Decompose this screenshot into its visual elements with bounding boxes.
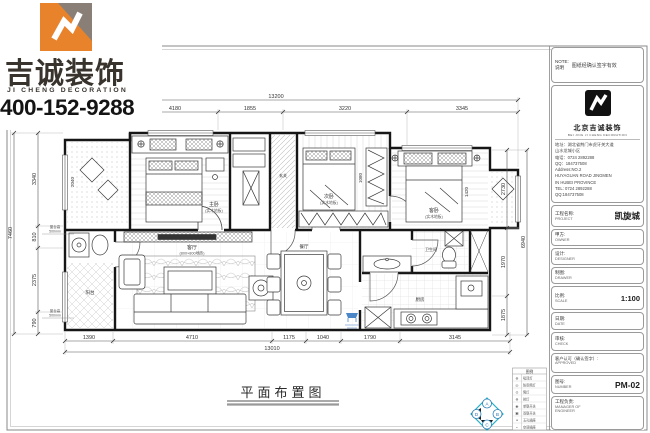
- label-living: 客厅: [187, 244, 197, 251]
- tv-cabinet: [124, 232, 252, 242]
- svg-text:窗台高: 窗台高: [50, 224, 61, 229]
- shower-drain: [445, 231, 463, 246]
- svg-text:A: A: [485, 401, 488, 406]
- drawing-number: PM-02: [615, 380, 640, 390]
- bed2-wardrobe-right: [366, 148, 387, 206]
- dim-left-3: 790: [32, 318, 38, 327]
- bed2-wardrobe-bottom: [299, 211, 388, 227]
- note-box: NOTE: 说明 图纸经确认签字有效: [551, 47, 644, 83]
- designer-box: 设计:DESIGNER: [551, 248, 644, 265]
- svg-text:射灯: 射灯: [523, 397, 530, 402]
- svg-text:⊗: ⊗: [515, 398, 518, 402]
- drawing-sheet: 13200 4180 1855 3220 3345 1390 4710 1175…: [0, 0, 650, 433]
- tb-company-cn: 北京吉诚装饰: [555, 123, 640, 133]
- dim-bottom-5: 3145: [449, 335, 461, 341]
- label-bed3-sub: (实木地板): [425, 214, 443, 219]
- approved-box: 客户认可（确认签字）: APPROVED: [551, 353, 644, 373]
- dim-inner-wardrobe: 1080: [358, 172, 363, 183]
- svg-text:吸顶灯: 吸顶灯: [523, 376, 533, 381]
- label-bed2-sub: (实木地板): [320, 200, 338, 205]
- label-master-sub: (实木地板): [205, 208, 223, 213]
- svg-text:500mm: 500mm: [49, 314, 61, 318]
- dim-top-0: 4180: [169, 106, 181, 112]
- scale-box: 比例:SCALE 1:100: [551, 286, 644, 310]
- dim-left-0: 3340: [32, 173, 38, 185]
- label-kitchen: 厨房: [416, 296, 425, 303]
- svg-text:500mm: 500mm: [49, 230, 61, 234]
- dim-bottom-3: 1040: [317, 335, 329, 341]
- scale-value: 1:100: [621, 294, 640, 303]
- dim-bottom-1: 4710: [186, 335, 198, 341]
- label-balcony: 阳台: [86, 289, 95, 296]
- project-box: 工程名称:PROJECT 凯旋城: [551, 205, 644, 227]
- dim-bottom-overall: 13010: [264, 346, 279, 352]
- dim-top-overall: 13200: [268, 94, 283, 100]
- svg-text:双联开关: 双联开关: [523, 411, 537, 416]
- hall-cabinets: [233, 138, 265, 205]
- plan-title: 平面布置图: [240, 385, 325, 400]
- manager-box: 工程负责: MANAGER OF ENGINEER: [551, 396, 644, 430]
- svg-text:五孔插座: 五孔插座: [523, 418, 537, 423]
- dim-bottom-0: 1390: [83, 335, 95, 341]
- label-bed2: 次卧: [324, 193, 334, 200]
- jicheng-diamond-logo: [40, 3, 92, 51]
- label-living-sub: (800×800地砖): [179, 251, 205, 256]
- dim-left-1: 810: [32, 232, 38, 241]
- svg-text:筒灯: 筒灯: [523, 390, 530, 395]
- elevation-compass-icon: A B C D: [471, 398, 503, 430]
- label-dining: 餐厅: [300, 243, 309, 250]
- owner-box: 甲方:OWNER: [551, 229, 644, 246]
- label-bath: 卫生间: [425, 246, 437, 252]
- vanity: [363, 256, 411, 272]
- svg-text:⊕: ⊕: [515, 377, 518, 381]
- dim-inner-bed: 1420: [464, 186, 469, 197]
- check-box: 审核:CHECK: [551, 332, 644, 351]
- dim-bottom-2: 1175: [283, 335, 295, 341]
- brand-block: 吉诚装饰 JI CHENG DECORATION 400-152-9288: [0, 0, 162, 130]
- label-entry: 玄关: [279, 172, 287, 178]
- phone-number: 400-152-9288: [0, 95, 134, 121]
- tb-qq-en: QQ:184737508: [555, 192, 640, 198]
- toilet: [442, 247, 456, 268]
- number-box: 图号:NUMBER PM-02: [551, 375, 644, 394]
- dim-right-1: 1970: [501, 256, 507, 268]
- svg-text:空调插座: 空调插座: [523, 425, 537, 430]
- company-name-en: JI CHENG DECORATION: [7, 87, 128, 94]
- master-wardrobe: [132, 136, 228, 153]
- plan-title-group: 平面布置图: [227, 385, 339, 405]
- svg-text:⊙: ⊙: [515, 391, 518, 395]
- fridge: [365, 307, 391, 328]
- svg-text:▣: ▣: [515, 412, 519, 416]
- shaft: [470, 230, 488, 272]
- svg-text:窗台高: 窗台高: [50, 308, 61, 313]
- company-name-cn: 吉诚装饰: [5, 50, 125, 92]
- svg-text:防雾筒灯: 防雾筒灯: [523, 383, 537, 388]
- coffee-table: [164, 267, 216, 294]
- dim-right-2: 1875: [501, 309, 507, 321]
- tb-company-en: BEI JING JI CHENG DECORATION: [555, 133, 640, 140]
- label-master: 主卧: [209, 201, 219, 208]
- dim-inner-bath: 2040: [70, 176, 75, 187]
- label-bed3: 客卧: [429, 207, 439, 214]
- note-label-cn: 说明: [555, 65, 569, 71]
- note-text: 图纸经确认签字有效: [572, 62, 617, 69]
- dim-right-0: 2730: [501, 183, 507, 195]
- svg-text:≡: ≡: [516, 419, 518, 423]
- project-name: 凯旋城: [614, 210, 640, 222]
- drawer-box: 制图:DRAWER: [551, 267, 644, 284]
- company-box: 北京吉诚装饰 BEI JING JI CHENG DECORATION 地址：湖…: [551, 85, 644, 203]
- dim-left-overall: 7460: [8, 227, 14, 239]
- master-bed: [146, 158, 202, 222]
- legend-table: 图例 ⊕◎ ⊙⊗ ◉▣ ≡⌁ 吸顶灯防雾筒灯 筒灯射灯 单联开关双联开关 五孔插…: [513, 368, 547, 430]
- dining-set: [267, 251, 341, 315]
- svg-text:B: B: [496, 412, 499, 417]
- laundry-fixtures: [69, 233, 108, 257]
- legend-title: 图例: [526, 369, 534, 374]
- dim-left-2: 2375: [32, 274, 38, 286]
- dim-right-overall: 6940: [521, 236, 527, 248]
- date-box: 日期:DATE: [551, 312, 644, 330]
- dim-top-3: 3345: [456, 106, 468, 112]
- dim-top-2: 3220: [339, 106, 351, 112]
- dim-top-1: 1855: [244, 106, 256, 112]
- bed3-headboard: [392, 151, 480, 166]
- svg-text:单联开关: 单联开关: [523, 404, 537, 409]
- dim-bottom-4: 1790: [364, 335, 376, 341]
- title-block: NOTE: 说明 图纸经确认签字有效 北京吉诚装饰 BEI JING JI CH…: [551, 47, 644, 430]
- jicheng-badge-logo: [585, 90, 611, 116]
